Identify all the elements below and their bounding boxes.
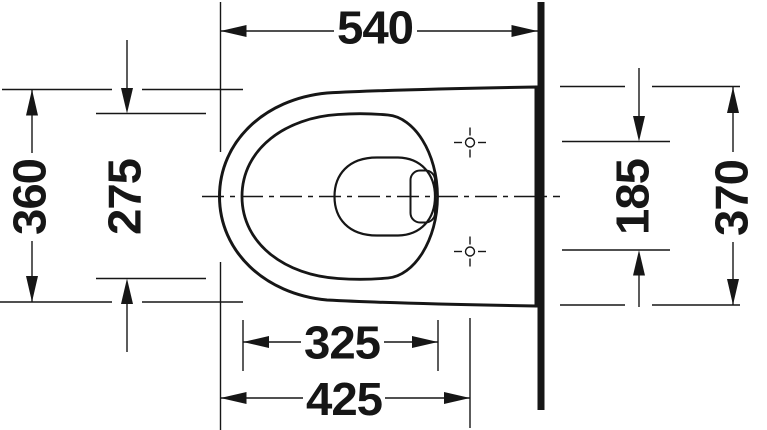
arrow-down-icon (727, 279, 739, 305)
dimension-bottom-inner-length: 325 (243, 317, 438, 372)
arrow-down-icon (26, 276, 38, 302)
dim-bottom-inner-length-label: 325 (304, 317, 380, 369)
arrow-up-icon (26, 90, 38, 116)
dim-hole-spacing-label: 185 (607, 159, 659, 235)
toilet-plan-technical-drawing: 540 360 275 185 (0, 0, 767, 430)
arrow-down-icon (121, 88, 133, 114)
arrow-up-icon (633, 250, 645, 276)
arrow-down-icon (633, 116, 645, 142)
dim-right-outer-width-label: 370 (706, 160, 758, 236)
dimension-hole-spacing: 185 (562, 68, 670, 307)
arrow-left-icon (221, 25, 247, 37)
arrow-left-icon (243, 336, 269, 348)
wall-line (538, 2, 545, 410)
dim-left-inner-width-label: 275 (99, 159, 151, 235)
dim-left-outer-width-label: 360 (4, 159, 56, 235)
arrow-up-icon (727, 87, 739, 113)
dimension-right-outer-width: 370 (560, 87, 758, 306)
arrow-right-icon (512, 25, 538, 37)
technical-drawing-page: 540 360 275 185 (0, 0, 767, 430)
arrow-right-icon (444, 392, 470, 404)
dimension-left-inner-width: 275 (96, 40, 206, 352)
arrow-left-icon (221, 392, 247, 404)
arrow-right-icon (412, 336, 438, 348)
dim-bottom-outer-length-label: 425 (306, 373, 382, 425)
mounting-hole-top-icon (454, 128, 486, 158)
arrow-up-icon (121, 279, 133, 305)
dimension-top-depth: 540 (221, 2, 538, 153)
mounting-hole-bottom-icon (454, 237, 486, 267)
dim-top-depth-label: 540 (337, 2, 413, 54)
